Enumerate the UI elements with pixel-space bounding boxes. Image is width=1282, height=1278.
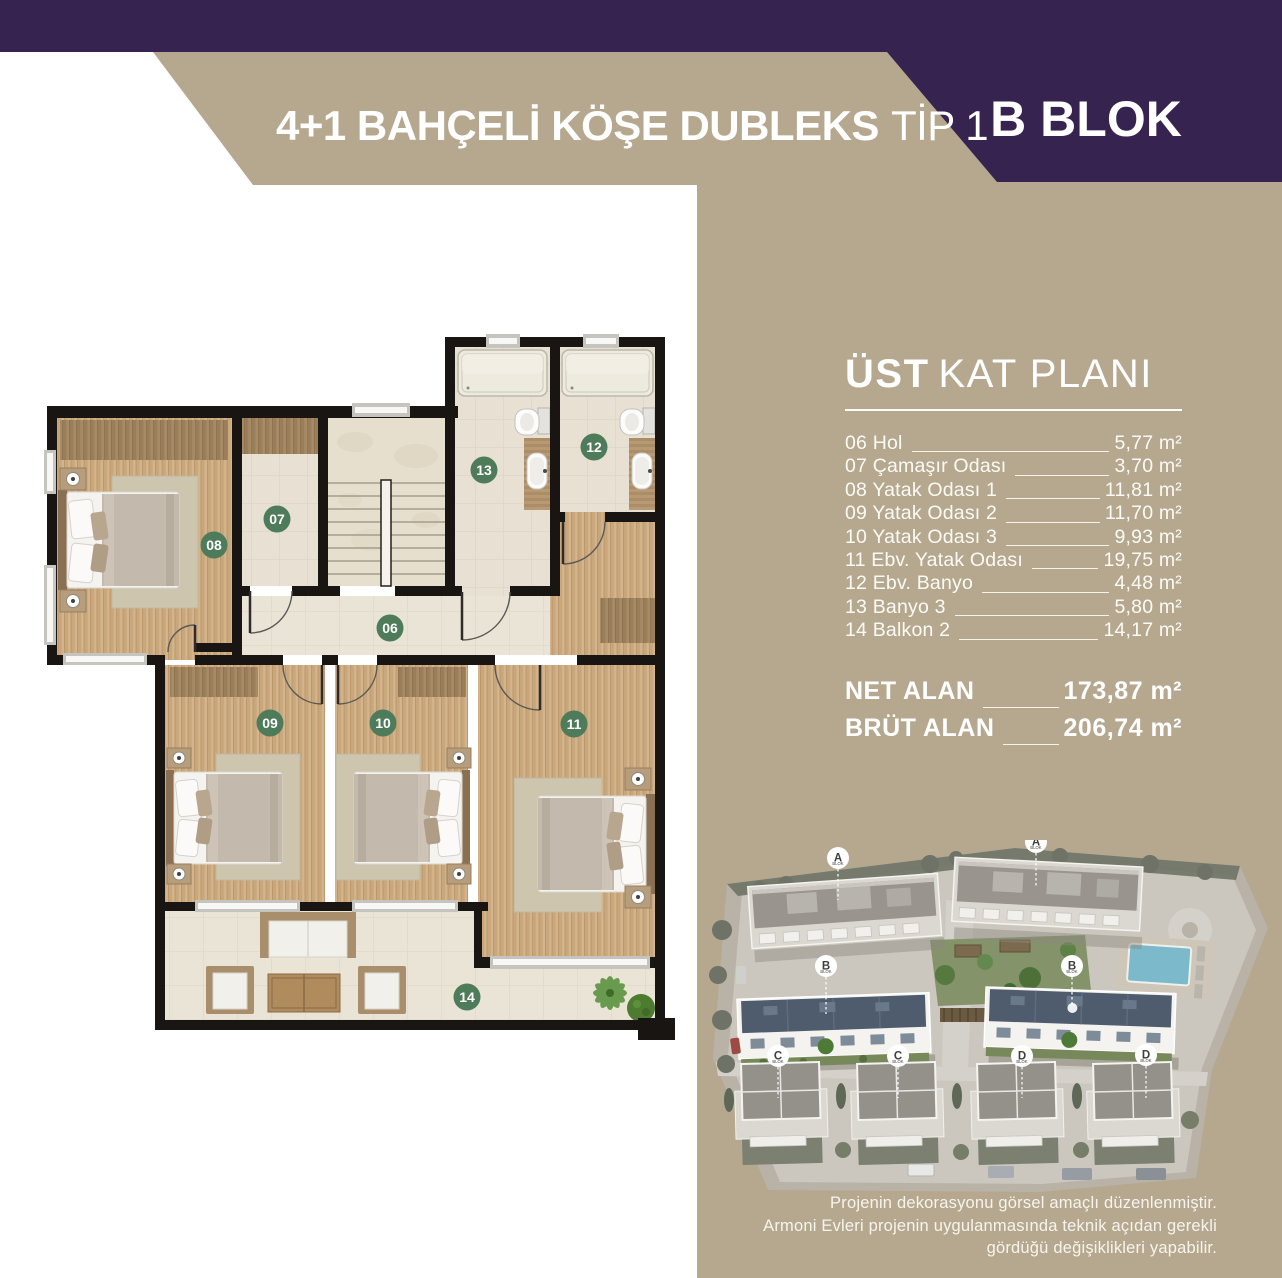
svg-text:BLOK: BLOK [1030, 845, 1041, 850]
room-area: 5,77 m² [1114, 432, 1182, 455]
gross-area-row: BRÜT ALAN206,74 m² [845, 714, 1182, 751]
svg-text:06: 06 [382, 620, 398, 636]
svg-text:11: 11 [567, 716, 582, 732]
toilet-12 [620, 408, 655, 435]
badge-bedroom1: 08 [201, 532, 228, 559]
disclaimer-line-2: Armoni Evleri projenin uygulanmasında te… [700, 1215, 1217, 1260]
building-a1 [748, 873, 945, 962]
room-area-list: 06 Hol5,77 m² 07 Çamaşır Odası3,70 m² 08… [845, 432, 1182, 643]
floor-plan-heading-bold: ÜST [845, 352, 930, 396]
svg-text:BLOK: BLOK [1016, 1059, 1027, 1064]
area-totals: NET ALAN173,87 m² BRÜT ALAN206,74 m² [845, 677, 1182, 751]
room-area: 4,48 m² [1114, 572, 1182, 595]
bed-room11 [538, 794, 655, 894]
purple-top-band [0, 0, 1282, 52]
badge-bedroom3: 10 [370, 710, 397, 737]
room-row: 13 Banyo 35,80 m² [845, 596, 1182, 619]
sink-counter-12 [629, 438, 655, 510]
room-area: 14,17 m² [1103, 619, 1182, 642]
room-label: 14 Balkon 2 [845, 619, 950, 642]
svg-text:BLOK: BLOK [1066, 969, 1077, 974]
badge-balcony: 14 [454, 984, 481, 1011]
svg-text:12: 12 [586, 439, 602, 455]
room-row: 07 Çamaşır Odası3,70 m² [845, 455, 1182, 478]
room-label: 13 Banyo 3 [845, 596, 946, 619]
floor-plan-drawing: 06 07 08 09 10 11 12 13 14 [40, 330, 685, 1070]
room-label: 07 Çamaşır Odası [845, 455, 1006, 478]
room-label: 12 Ebv. Banyo [845, 572, 973, 595]
leader-line [983, 707, 1058, 708]
room-label: 06 Hol [845, 432, 903, 455]
room-row: 09 Yatak Odası 211,70 m² [845, 502, 1182, 525]
svg-text:09: 09 [262, 715, 278, 731]
room-area: 5,80 m² [1114, 596, 1182, 619]
leader-line [1015, 475, 1109, 476]
bathtub-12 [562, 350, 653, 396]
villa-d1 [970, 1062, 1065, 1165]
svg-text:08: 08 [206, 537, 222, 553]
sink-counter-13 [524, 438, 550, 510]
room-label: 09 Yatak Odası 2 [845, 502, 997, 525]
room-row: 11 Ebv. Yatak Odası19,75 m² [845, 549, 1182, 572]
svg-text:BLOK: BLOK [772, 1059, 783, 1064]
gross-area-value: 206,74 m² [1064, 714, 1182, 743]
room-area: 11,70 m² [1105, 502, 1182, 525]
badge-hall: 06 [377, 615, 404, 642]
svg-text:14: 14 [459, 989, 475, 1005]
disclaimer-line-1: Projenin dekorasyonu görsel amaçlı düzen… [700, 1192, 1217, 1215]
heading-divider [845, 409, 1182, 411]
bed-room09 [166, 770, 282, 866]
svg-text:07: 07 [269, 511, 285, 527]
bed-room10 [354, 770, 470, 866]
svg-text:BLOK: BLOK [1140, 1058, 1151, 1063]
disclaimer: Projenin dekorasyonu görsel amaçlı düzen… [700, 1192, 1217, 1260]
net-area-row: NET ALAN173,87 m² [845, 677, 1182, 714]
page-title-sub: TİP 1 [891, 102, 988, 149]
leader-line [1006, 545, 1109, 546]
leader-line [955, 615, 1110, 616]
floor-plan-heading-rest: KAT PLANI [939, 352, 1153, 396]
room-row: 08 Yatak Odası 111,81 m² [845, 479, 1182, 502]
block-name: B BLOK [980, 92, 1192, 146]
svg-text:BLOK: BLOK [820, 969, 831, 974]
villa-d2 [1086, 1062, 1181, 1165]
badge-bath3: 13 [471, 457, 498, 484]
page-title-main: 4+1 BAHÇELİ KÖŞE DUBLEKS [276, 102, 879, 149]
leader-line [912, 451, 1110, 452]
brochure-page: 4+1 BAHÇELİ KÖŞE DUBLEKSTİP 1 B BLOK ÜST… [0, 0, 1282, 1278]
villa-c2 [850, 1062, 945, 1165]
svg-text:BLOK: BLOK [892, 1059, 903, 1064]
net-area-label: NET ALAN [845, 677, 974, 706]
site-plan-render: A BLOK A BLOK B BLOK B BLOK [705, 840, 1282, 1198]
net-area-value: 173,87 m² [1064, 677, 1182, 706]
room-row: 06 Hol5,77 m² [845, 432, 1182, 455]
gross-area-label: BRÜT ALAN [845, 714, 994, 743]
room-area: 11,81 m² [1105, 479, 1182, 502]
room-label: 10 Yatak Odası 3 [845, 526, 997, 549]
villa-c1 [734, 1062, 829, 1165]
badge-master-bedroom: 11 [561, 711, 588, 738]
room-row: 12 Ebv. Banyo4,48 m² [845, 572, 1182, 595]
leader-line [1006, 522, 1100, 523]
page-title: 4+1 BAHÇELİ KÖŞE DUBLEKSTİP 1 [276, 103, 988, 149]
leader-line [1003, 744, 1058, 745]
room-area: 19,75 m² [1103, 549, 1182, 572]
room-label: 11 Ebv. Yatak Odası [845, 549, 1023, 572]
room-row: 14 Balkon 214,17 m² [845, 619, 1182, 642]
floor-plan-heading: ÜSTKAT PLANI [845, 352, 1153, 396]
leader-line [982, 592, 1109, 593]
room-row: 10 Yatak Odası 39,93 m² [845, 526, 1182, 549]
toilet-13 [515, 408, 550, 435]
svg-text:10: 10 [375, 715, 391, 731]
leader-line [1032, 568, 1098, 569]
room-area: 9,93 m² [1114, 526, 1182, 549]
badge-bedroom2: 09 [257, 710, 284, 737]
room-area: 3,70 m² [1114, 455, 1182, 478]
bathtub-13 [458, 350, 547, 396]
bed-room08 [58, 490, 179, 590]
svg-text:BLOK: BLOK [832, 861, 843, 866]
badge-laundry: 07 [264, 506, 291, 533]
room-label: 08 Yatak Odası 1 [845, 479, 997, 502]
leader-line [959, 639, 1098, 640]
badge-master-bath: 12 [581, 434, 608, 461]
svg-text:13: 13 [476, 462, 492, 478]
leader-line [1006, 498, 1100, 499]
